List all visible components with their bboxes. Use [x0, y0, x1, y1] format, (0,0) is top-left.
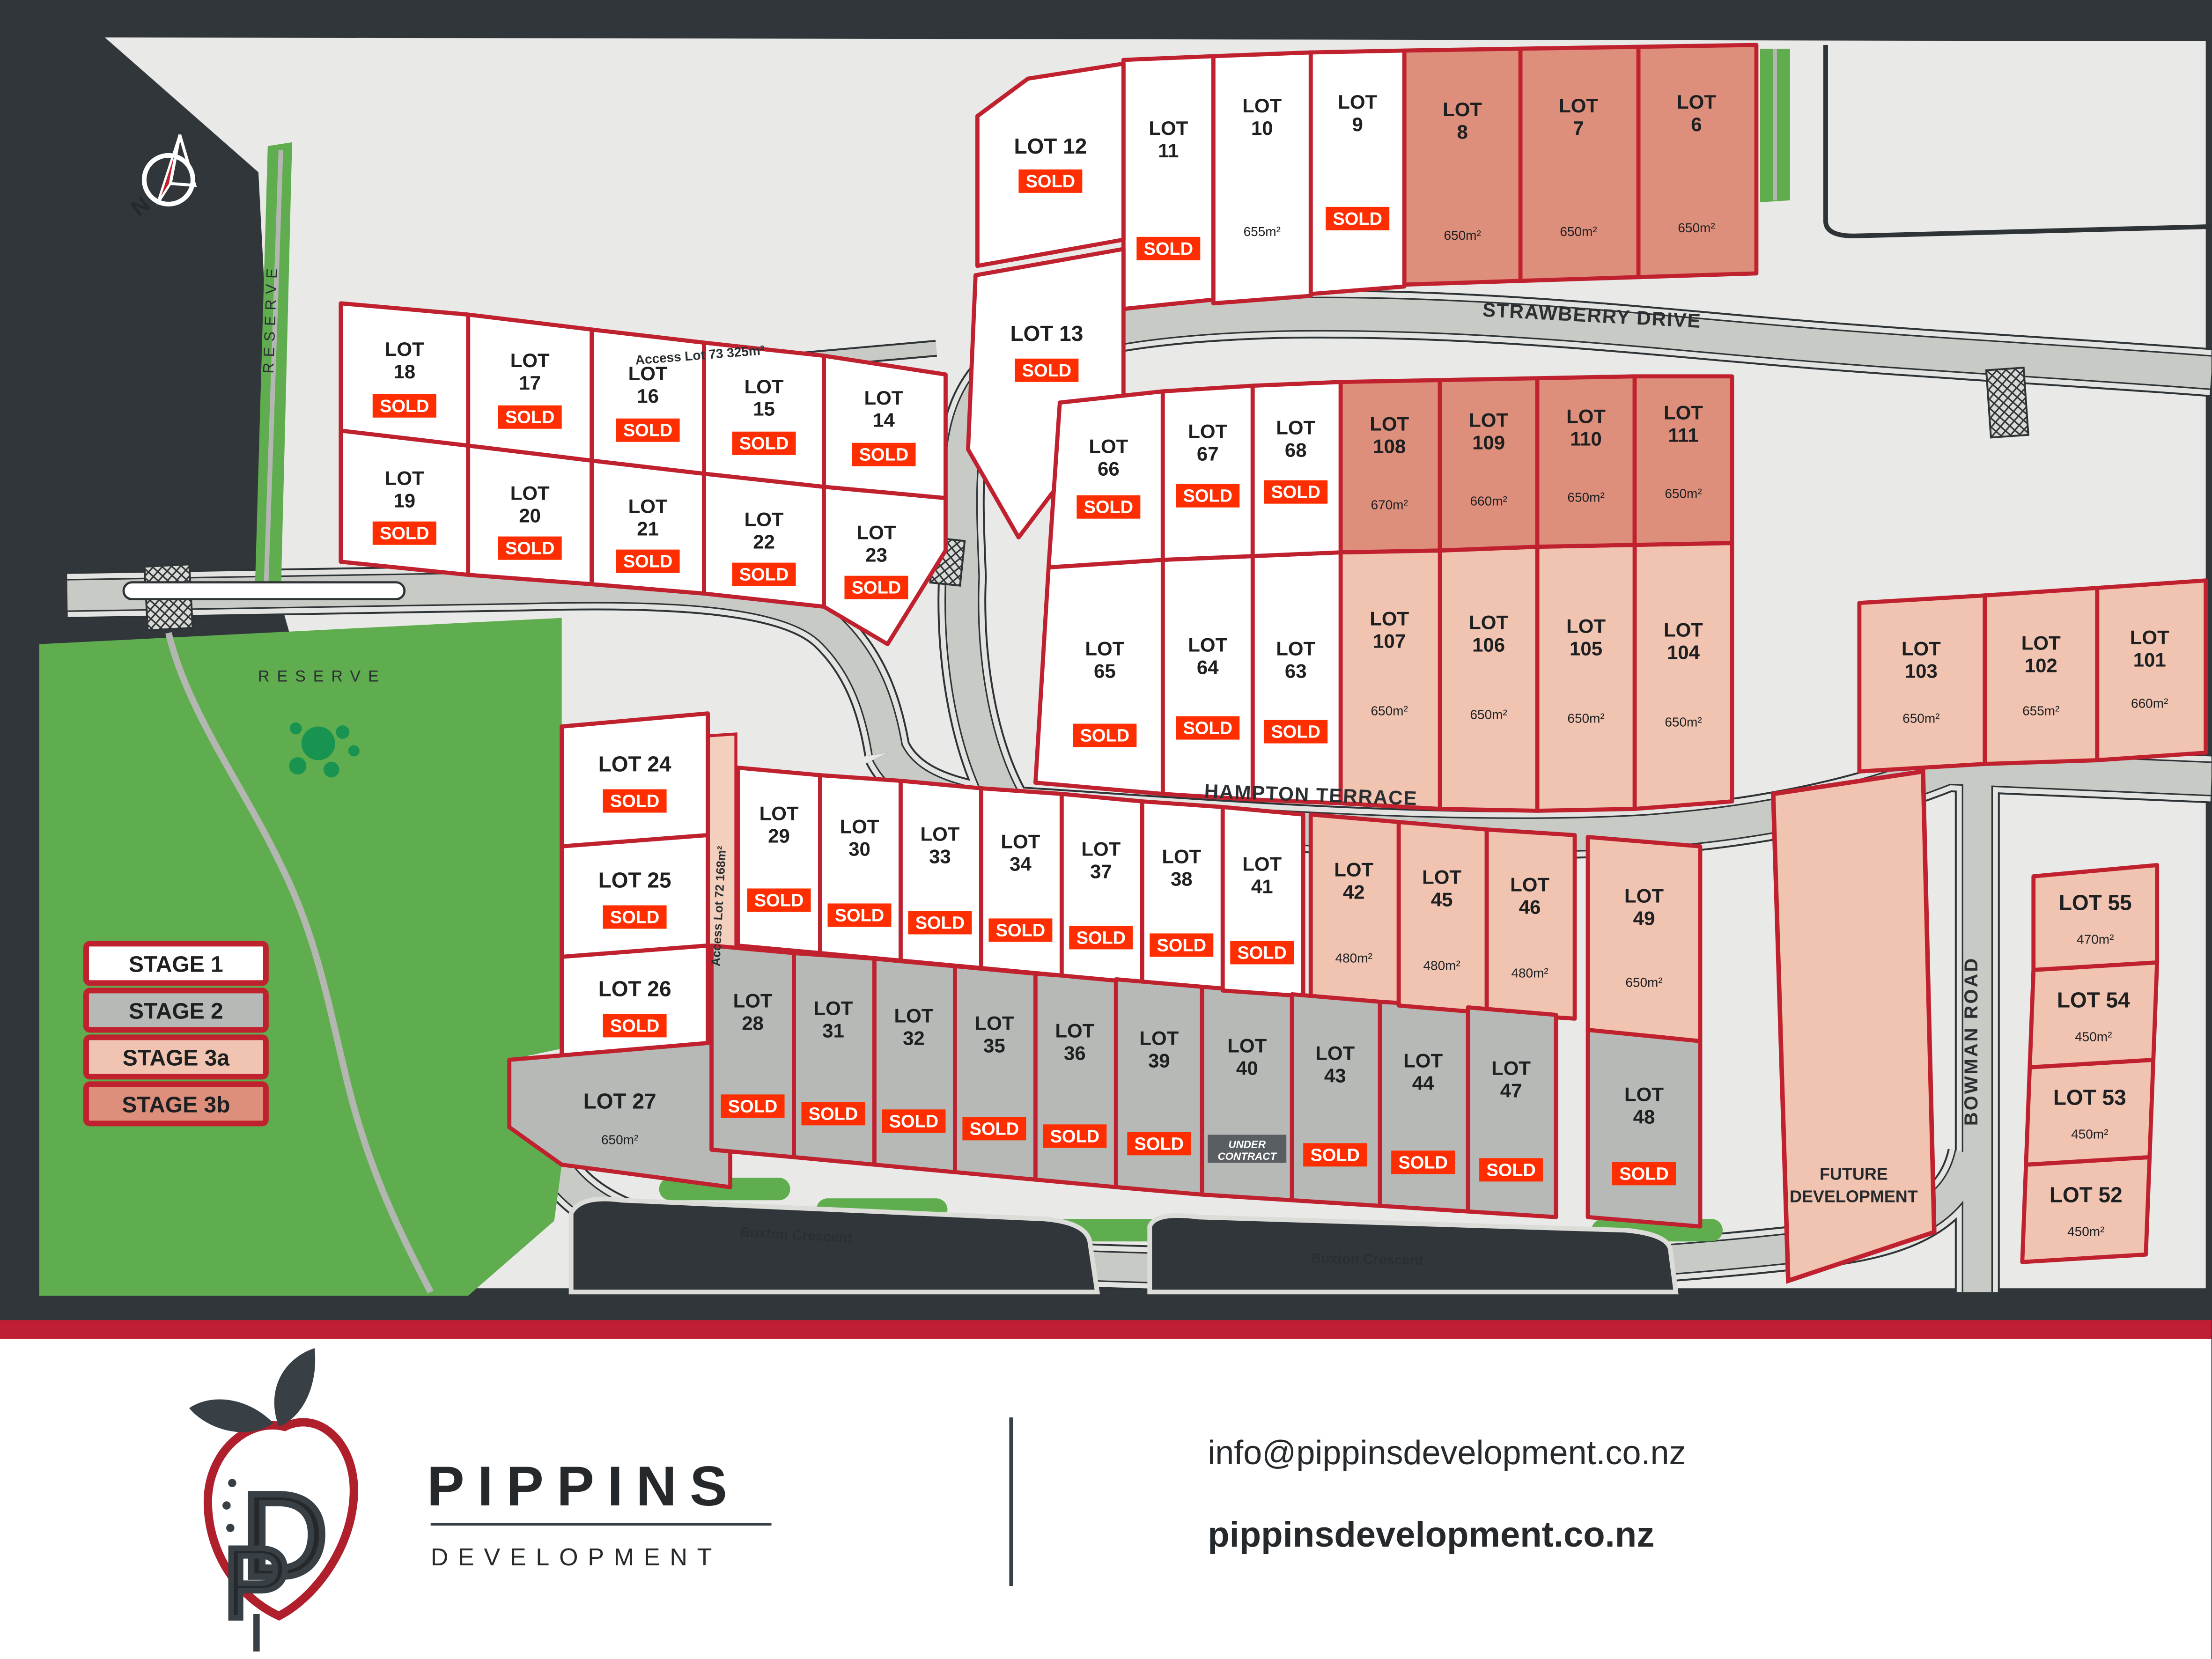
lot-68-sold-label: SOLD	[1271, 483, 1320, 502]
lot-67: LOT67SOLD	[1163, 386, 1253, 560]
lot-107-parcel	[1341, 551, 1440, 809]
street-label-buxton_b: Buxton Crescent	[1311, 1251, 1423, 1268]
lot-46-label: LOT	[1510, 873, 1549, 895]
brand-name: PIPPINS	[427, 1455, 740, 1518]
lot-106-parcel	[1440, 547, 1537, 811]
lot-109-area: 660m²	[1470, 494, 1507, 509]
lot-64: LOT64SOLD	[1163, 556, 1253, 800]
lot-44-parcel	[1380, 1002, 1468, 1211]
lot-105-area: 650m²	[1567, 711, 1604, 726]
lot-101: LOT101660m²	[2097, 581, 2206, 760]
lot-55-label: LOT 55	[2059, 890, 2132, 914]
lot-10-parcel	[1213, 52, 1311, 303]
lot-37-number: 37	[1090, 860, 1112, 882]
lot-17-label: LOT	[510, 349, 550, 371]
lot-63: LOT63SOLD	[1253, 553, 1341, 804]
lot-54-label: LOT 54	[2057, 988, 2130, 1012]
street-label-bowman: BOWMAN ROAD	[1961, 957, 1982, 1126]
lot-41-number: 41	[1251, 875, 1273, 897]
lot-21: LOT21SOLD	[592, 461, 704, 594]
lot-40: LOT40UNDERCONTRACT	[1202, 987, 1292, 1200]
lot-8: LOT8650m²	[1404, 49, 1520, 285]
lot-108-label: LOT	[1370, 413, 1409, 435]
lot-110-area: 650m²	[1567, 490, 1604, 505]
lot-109-label: LOT	[1469, 409, 1508, 431]
lot-21-label: LOT	[628, 495, 668, 517]
legend-label-stage-3b: STAGE 3b	[122, 1092, 230, 1117]
lot-102: LOT102655m²	[1985, 588, 2097, 764]
lot-65: LOT65SOLD	[1035, 560, 1163, 794]
lot-39-parcel	[1116, 979, 1202, 1194]
lot-67-number: 67	[1197, 443, 1219, 465]
lot-45-number: 45	[1431, 888, 1453, 910]
lot-38-sold-label: SOLD	[1157, 936, 1206, 955]
lot-19-sold-label: SOLD	[380, 524, 429, 544]
lot-7-parcel	[1520, 47, 1638, 281]
lot-8-label: LOT	[1443, 98, 1482, 120]
lot-105-number: 105	[1570, 638, 1602, 660]
lot-38-parcel	[1142, 802, 1223, 991]
lot-45-area: 480m²	[1423, 958, 1460, 973]
lot-32-sold-label: SOLD	[889, 1112, 938, 1131]
lot-35-number: 35	[983, 1034, 1005, 1056]
lot-43: LOT43SOLD	[1292, 994, 1380, 1206]
lot-102-area: 655m²	[2022, 704, 2059, 718]
lot-54-area: 450m²	[2075, 1029, 2112, 1044]
lot-109: LOT109660m²	[1440, 378, 1537, 551]
lot-14: LOT14SOLD	[824, 356, 946, 498]
lot-30-label: LOT	[840, 815, 879, 837]
lot-49-number: 49	[1633, 907, 1655, 929]
lot-24-label: LOT 24	[598, 752, 671, 776]
lot-107-area: 650m²	[1371, 704, 1408, 718]
lot-66-sold-label: SOLD	[1084, 498, 1133, 517]
lot-36-label: LOT	[1055, 1019, 1094, 1041]
lot-105: LOT105650m²	[1537, 545, 1635, 811]
lot-33-parcel	[900, 781, 981, 968]
lot-15-sold-label: SOLD	[739, 434, 789, 454]
lot-104-area: 650m²	[1665, 715, 1702, 730]
lot-65-sold-label: SOLD	[1080, 726, 1129, 746]
lot-43-label: LOT	[1315, 1042, 1355, 1064]
lot-48: LOT48SOLD	[1588, 1030, 1700, 1226]
lot-7: LOT7650m²	[1520, 47, 1638, 281]
lot-35-parcel	[955, 966, 1035, 1180]
lot-25-parcel	[562, 835, 708, 957]
lot-49: LOT49650m²	[1588, 837, 1700, 1041]
lot-14-number: 14	[873, 409, 895, 431]
lot-6-number: 6	[1691, 113, 1702, 135]
logo-seed-dot	[228, 1479, 236, 1487]
tree-icon	[324, 762, 339, 778]
lot-106-area: 650m²	[1470, 708, 1507, 722]
lot-68-number: 68	[1285, 439, 1307, 461]
lot-6-parcel	[1638, 45, 1756, 277]
lot-106-number: 106	[1472, 634, 1505, 656]
lot-17-number: 17	[519, 372, 541, 394]
lot-10-area: 655m²	[1244, 224, 1281, 239]
lot-104: LOT104650m²	[1635, 543, 1732, 809]
lot-48-label: LOT	[1624, 1083, 1664, 1105]
contact-email[interactable]: info@pippinsdevelopment.co.nz	[1208, 1434, 1686, 1472]
lot-41-label: LOT	[1242, 853, 1282, 875]
lot-9-number: 9	[1352, 113, 1363, 135]
lot-20-label: LOT	[510, 482, 550, 504]
lot-23-sold-label: SOLD	[852, 578, 901, 598]
lot-42-number: 42	[1343, 881, 1365, 903]
future-development-block: FUTUREDEVELOPMENT	[1773, 772, 1934, 1281]
lot-37: LOT37SOLD	[1062, 794, 1142, 983]
lot-102-number: 102	[2025, 655, 2057, 677]
lot-49-label: LOT	[1624, 885, 1664, 907]
lot-26-label: LOT 26	[598, 976, 671, 1001]
lot-15-label: LOT	[745, 376, 784, 398]
lot-17-sold-label: SOLD	[505, 408, 554, 428]
lot-22-number: 22	[753, 531, 775, 553]
lot-107-number: 107	[1373, 630, 1406, 652]
lot-45-parcel	[1399, 822, 1487, 1013]
logo-seed-dot	[222, 1501, 231, 1510]
lot-17: LOT17SOLD	[468, 315, 592, 461]
lot-15: LOT15SOLD	[704, 343, 824, 487]
lot-25-sold-label: SOLD	[610, 907, 659, 927]
lot-47-sold-label: SOLD	[1486, 1160, 1535, 1180]
lot-40-under-contract-label2: CONTRACT	[1217, 1150, 1277, 1162]
lot-63-sold-label: SOLD	[1271, 723, 1320, 742]
lot-7-label: LOT	[1559, 95, 1598, 117]
lot-18-label: LOT	[385, 338, 424, 360]
lot-14-sold-label: SOLD	[859, 445, 908, 465]
lot-37-parcel	[1062, 794, 1142, 983]
lot-19-label: LOT	[385, 467, 424, 489]
lot-34-parcel	[981, 789, 1062, 976]
lot-23-number: 23	[865, 544, 887, 566]
lot-10-label: LOT	[1242, 95, 1282, 117]
lot-42-label: LOT	[1334, 858, 1373, 880]
lot-101-number: 101	[2133, 649, 2166, 671]
lot-36-number: 36	[1064, 1042, 1086, 1064]
lot-29-label: LOT	[759, 803, 799, 825]
lot-20: LOT20SOLD	[468, 446, 592, 584]
lot-9: LOT9SOLD	[1311, 51, 1404, 294]
site-plan-map: FUTUREDEVELOPMENTLOT6650m²LOT7650m²LOT86…	[0, 0, 2212, 1659]
lot-30-sold-label: SOLD	[835, 906, 884, 925]
lot-54: LOT 54450m²	[2030, 962, 2157, 1067]
lot-29: LOT29SOLD	[738, 768, 820, 953]
lot-34-label: LOT	[1001, 830, 1040, 852]
lot-43-sold-label: SOLD	[1310, 1145, 1359, 1165]
lot-103: LOT103650m²	[1859, 596, 1985, 772]
lot-108-area: 670m²	[1371, 498, 1408, 512]
lot-53-label: LOT 53	[2053, 1085, 2126, 1109]
lot-41: LOT41SOLD	[1223, 807, 1303, 996]
legend-item-stage-3b: STAGE 3b	[86, 1084, 266, 1123]
lot-109-number: 109	[1472, 432, 1505, 454]
lot-103-number: 103	[1905, 660, 1938, 682]
lot-55-parcel	[2034, 865, 2157, 970]
lot-53-area: 450m²	[2071, 1127, 2108, 1141]
lot-66-number: 66	[1098, 458, 1120, 480]
lot-40-label: LOT	[1227, 1034, 1267, 1056]
lot-39: LOT39SOLD	[1116, 979, 1202, 1194]
lot-68: LOT68SOLD	[1253, 382, 1341, 556]
lot-102-label: LOT	[2021, 632, 2061, 654]
lot-19: LOT19SOLD	[341, 431, 468, 575]
lot-38-label: LOT	[1162, 845, 1201, 867]
lot-109-parcel	[1440, 378, 1537, 551]
lot-65-label: LOT	[1085, 638, 1124, 660]
lot-31-label: LOT	[814, 997, 853, 1019]
lot-12-label: LOT 12	[1014, 134, 1087, 158]
lot-64-sold-label: SOLD	[1183, 719, 1232, 738]
lot-101-area: 660m²	[2131, 696, 2168, 711]
lot-28: LOT28SOLD	[712, 945, 794, 1157]
lot-45-label: LOT	[1422, 866, 1461, 888]
lot-106: LOT106650m²	[1440, 547, 1537, 811]
lot-48-parcel	[1588, 1030, 1700, 1226]
lot-8-area: 650m²	[1444, 228, 1481, 243]
lot-37-sold-label: SOLD	[1077, 928, 1126, 948]
lot-22: LOT22SOLD	[704, 474, 824, 607]
lot-110: LOT110650m²	[1537, 376, 1635, 547]
lot-43-parcel	[1292, 994, 1380, 1206]
lot-47-label: LOT	[1491, 1057, 1531, 1079]
lot-64-number: 64	[1197, 656, 1219, 678]
lot-48-sold-label: SOLD	[1619, 1164, 1668, 1184]
lot-110-number: 110	[1570, 428, 1602, 450]
lot-46: LOT46480m²	[1487, 830, 1575, 1019]
footer-background	[0, 1339, 2212, 1659]
lot-28-label: LOT	[733, 989, 773, 1011]
lot-39-label: LOT	[1139, 1027, 1179, 1049]
lot-40-number: 40	[1236, 1057, 1258, 1079]
lot-31-sold-label: SOLD	[809, 1104, 858, 1124]
lot-28-parcel	[712, 945, 794, 1157]
tree-icon	[348, 745, 360, 757]
lot-52-label: LOT 52	[2050, 1182, 2123, 1207]
lot-68-label: LOT	[1276, 417, 1315, 439]
lot-47-number: 47	[1500, 1079, 1522, 1101]
reserve-label-main: RESERVE	[258, 668, 386, 686]
lot-16-number: 16	[637, 385, 659, 407]
lot-10: LOT10655m²	[1213, 52, 1311, 303]
lot-47-parcel	[1468, 1007, 1556, 1217]
lot-40-parcel	[1202, 987, 1292, 1200]
road-median-island	[124, 582, 405, 599]
tree-icon	[336, 725, 349, 739]
lot-41-sold-label: SOLD	[1237, 943, 1286, 963]
lot-108-number: 108	[1373, 435, 1406, 457]
lot-66-label: LOT	[1089, 435, 1128, 457]
lot-34: LOT34SOLD	[981, 789, 1062, 976]
lot-41-parcel	[1223, 807, 1303, 996]
lot-29-parcel	[738, 768, 820, 953]
lot-30-parcel	[820, 775, 901, 961]
lot-11-label: LOT	[1149, 117, 1188, 139]
lot-104-label: LOT	[1664, 619, 1703, 641]
lot-11-sold-label: SOLD	[1144, 239, 1193, 259]
lot-66: LOT66SOLD	[1048, 391, 1163, 568]
lot-110-parcel	[1537, 376, 1635, 547]
lot-11: LOT11SOLD	[1123, 56, 1213, 309]
lot-63-number: 63	[1285, 660, 1307, 682]
lot-42: LOT42480m²	[1311, 815, 1399, 1006]
lot-11-parcel	[1123, 56, 1213, 309]
lot-55-area: 470m²	[2077, 932, 2114, 946]
lot-13-label: LOT 13	[1010, 321, 1083, 346]
lot-46-parcel	[1487, 830, 1575, 1019]
lot-111-label: LOT	[1664, 402, 1703, 424]
lot-6-area: 650m²	[1678, 221, 1715, 235]
lot-45: LOT45480m²	[1399, 822, 1487, 1013]
lot-46-number: 46	[1519, 896, 1541, 918]
lot-111-area: 650m²	[1665, 487, 1702, 501]
lot-64-label: LOT	[1188, 634, 1227, 656]
lot-6-label: LOT	[1677, 91, 1716, 113]
legend-label-stage-2: STAGE 2	[129, 999, 223, 1024]
future-development-label: FUTURE	[1820, 1164, 1888, 1183]
lot-24-sold-label: SOLD	[610, 792, 659, 811]
brand-subtitle: DEVELOPMENT	[431, 1544, 722, 1571]
lot-23-label: LOT	[857, 522, 896, 544]
lot-68-parcel	[1253, 382, 1341, 556]
lot-29-sold-label: SOLD	[754, 891, 804, 910]
lot-42-parcel	[1311, 815, 1399, 1006]
legend-item-stage-3a: STAGE 3a	[86, 1037, 266, 1077]
lot-111: LOT111650m²	[1635, 376, 1732, 545]
legend-label-stage-1: STAGE 1	[129, 952, 223, 977]
lot-32-label: LOT	[894, 1004, 933, 1026]
contact-website[interactable]: pippinsdevelopment.co.nz	[1208, 1515, 1654, 1555]
lot-108-parcel	[1341, 380, 1440, 553]
lot-30: LOT30SOLD	[820, 775, 901, 961]
lot-111-number: 111	[1668, 424, 1698, 446]
lot-7-area: 650m²	[1560, 224, 1597, 239]
lot-18-number: 18	[393, 361, 415, 383]
lot-44-sold-label: SOLD	[1398, 1153, 1447, 1172]
lot-39-sold-label: SOLD	[1135, 1134, 1184, 1154]
lot-34-number: 34	[1010, 853, 1032, 875]
lot-42-area: 480m²	[1335, 951, 1372, 965]
lot-39-number: 39	[1148, 1049, 1170, 1071]
lot-44: LOT44SOLD	[1380, 1002, 1468, 1211]
lot-43-number: 43	[1324, 1064, 1346, 1086]
lot-7-number: 7	[1573, 117, 1584, 139]
lot-33-label: LOT	[920, 823, 959, 845]
lot-104-parcel	[1635, 543, 1732, 809]
lot-28-sold-label: SOLD	[728, 1097, 777, 1116]
lot-24-parcel	[562, 714, 708, 847]
tree-icon	[290, 723, 302, 735]
lot-10-number: 10	[1251, 117, 1273, 139]
lot-8-number: 8	[1457, 121, 1467, 143]
lot-53: LOT 53450m²	[2026, 1060, 2153, 1165]
lot-101-label: LOT	[2130, 627, 2169, 649]
lot-35-label: LOT	[974, 1012, 1014, 1034]
lot-18-sold-label: SOLD	[380, 397, 429, 416]
lot-20-sold-label: SOLD	[505, 539, 554, 559]
lot-105-parcel	[1537, 545, 1635, 811]
lot-9-sold-label: SOLD	[1333, 209, 1382, 229]
lot-6: LOT6650m²	[1638, 45, 1756, 277]
lot-33: LOT33SOLD	[900, 781, 981, 968]
lot-104-number: 104	[1667, 641, 1700, 664]
lot-26: LOT 26SOLD	[562, 945, 708, 1060]
lot-19-number: 19	[393, 490, 415, 512]
site-plan-page: FUTUREDEVELOPMENTLOT6650m²LOT7650m²LOT86…	[0, 0, 2212, 1659]
lot-35: LOT35SOLD	[955, 966, 1035, 1180]
lot-14-label: LOT	[864, 387, 904, 409]
lot-107-label: LOT	[1370, 608, 1409, 630]
lot-35-sold-label: SOLD	[970, 1119, 1019, 1139]
lot-55: LOT 55470m²	[2034, 865, 2157, 970]
lot-32: LOT32SOLD	[874, 959, 955, 1172]
lot-103-parcel	[1859, 596, 1985, 772]
lot-36-sold-label: SOLD	[1050, 1127, 1099, 1146]
lot-38: LOT38SOLD	[1142, 802, 1223, 991]
lot-21-number: 21	[637, 518, 659, 540]
lot-63-label: LOT	[1276, 638, 1315, 660]
lot-16-sold-label: SOLD	[623, 421, 672, 441]
lot-25-label: LOT 25	[598, 868, 671, 892]
lot-52-parcel	[2022, 1157, 2150, 1262]
lot-15-number: 15	[753, 398, 775, 420]
lot-22-sold-label: SOLD	[739, 565, 789, 585]
lot-9-parcel	[1311, 51, 1404, 294]
lot-33-sold-label: SOLD	[915, 913, 965, 933]
lot-49-parcel	[1588, 837, 1700, 1041]
lot-24: LOT 24SOLD	[562, 714, 708, 847]
lot-52-area: 450m²	[2067, 1224, 2104, 1239]
lot-67-sold-label: SOLD	[1183, 487, 1232, 506]
future-development-label: DEVELOPMENT	[1790, 1187, 1918, 1206]
crossing-hatch-east	[1986, 368, 2028, 437]
lot-40-under-contract-label: UNDER	[1228, 1138, 1266, 1150]
legend-label-stage-3a: STAGE 3a	[123, 1046, 230, 1070]
lot-31-number: 31	[822, 1019, 844, 1041]
lot-31: LOT31SOLD	[794, 953, 875, 1165]
lot-29-number: 29	[768, 825, 790, 847]
lot-8-parcel	[1404, 49, 1520, 285]
lot-44-number: 44	[1412, 1072, 1434, 1094]
lot-18: LOT18SOLD	[341, 303, 468, 446]
legend-item-stage-2: STAGE 2	[86, 990, 266, 1030]
lot-49-area: 650m²	[1625, 975, 1662, 989]
red-divider-bar	[0, 1320, 2212, 1339]
lot-107: LOT107650m²	[1341, 551, 1440, 809]
lot-65-number: 65	[1094, 660, 1116, 682]
lot-9-label: LOT	[1338, 91, 1377, 113]
lot-22-label: LOT	[745, 509, 784, 531]
lot-33-number: 33	[929, 845, 951, 867]
lot-110-label: LOT	[1566, 406, 1606, 428]
lot-28-number: 28	[742, 1012, 764, 1034]
tree-icon	[289, 757, 306, 774]
lot-37-label: LOT	[1081, 838, 1121, 860]
lot-54-parcel	[2030, 962, 2157, 1067]
lot-105-label: LOT	[1566, 615, 1606, 637]
lot-13-sold-label: SOLD	[1022, 361, 1071, 381]
lot-46-area: 480m²	[1511, 966, 1548, 980]
tree-icon	[302, 727, 335, 760]
lot-48-number: 48	[1633, 1106, 1655, 1128]
lot-31-parcel	[794, 953, 875, 1165]
lot-106-label: LOT	[1469, 612, 1508, 634]
lot-32-number: 32	[903, 1027, 925, 1049]
lot-27-area: 650m²	[601, 1132, 638, 1147]
lot-103-label: LOT	[1902, 638, 1941, 660]
lot-38-number: 38	[1171, 868, 1193, 890]
